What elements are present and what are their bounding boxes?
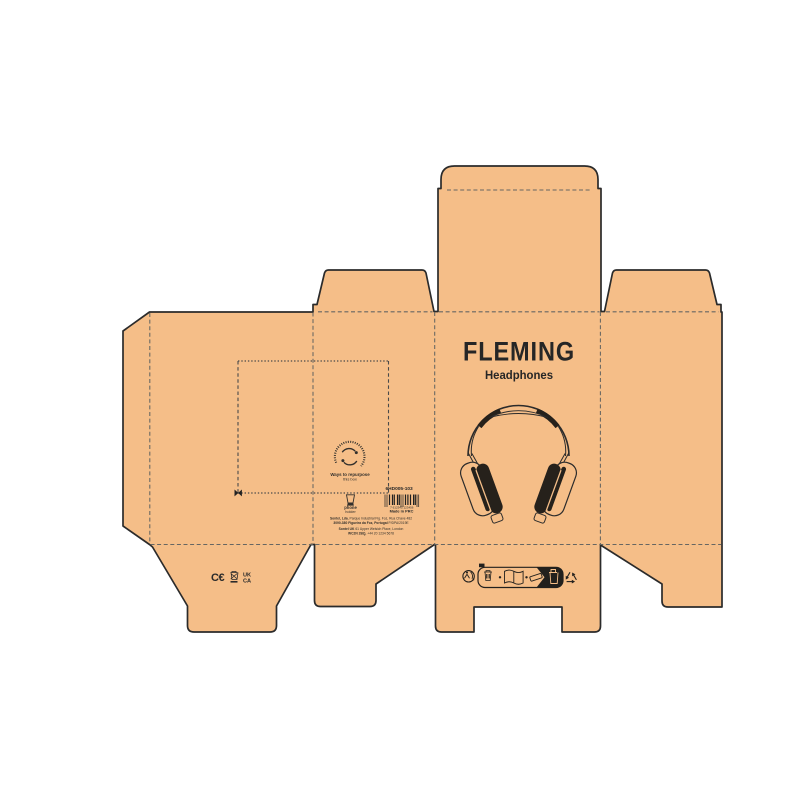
svg-text:CA: CA bbox=[243, 579, 251, 585]
svg-text:FLEMING: FLEMING bbox=[463, 337, 575, 367]
svg-text:C€: C€ bbox=[211, 572, 224, 584]
svg-text:this box: this box bbox=[343, 477, 357, 482]
svg-text:6HD005-103: 6HD005-103 bbox=[386, 486, 414, 492]
svg-text:Headphones: Headphones bbox=[485, 370, 553, 382]
svg-text:WC2N 2BQ, +44 20 1234 5678: WC2N 2BQ, +44 20 1234 5678 bbox=[348, 531, 394, 535]
svg-text:3090-380 Figueira da Foz, Port: 3090-380 Figueira da Foz, Portugal P/DPA… bbox=[333, 521, 409, 525]
svg-text:Made in PRC: Made in PRC bbox=[390, 508, 414, 513]
svg-text:holder: holder bbox=[345, 510, 356, 514]
